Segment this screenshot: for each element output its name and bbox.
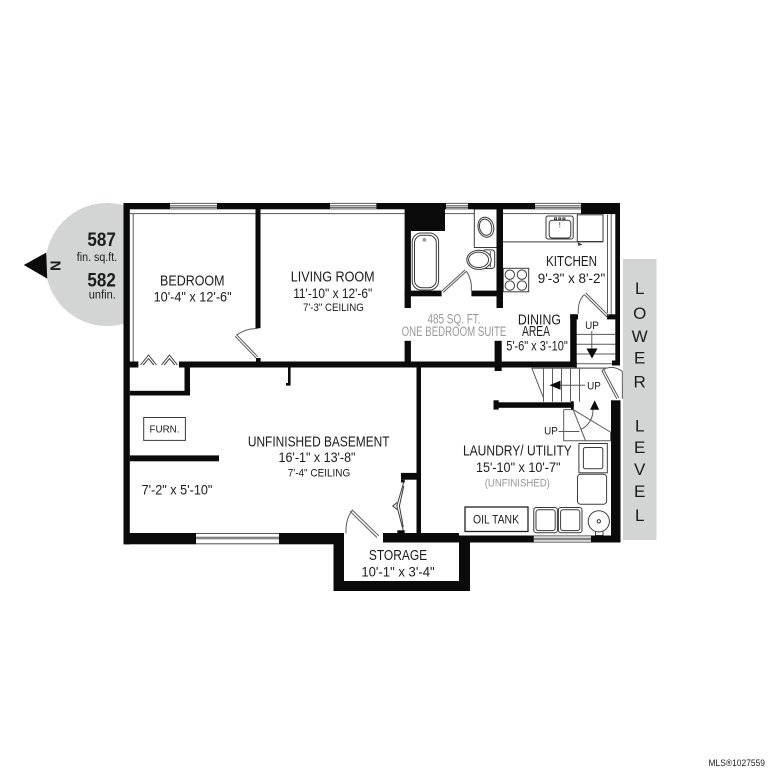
svg-text:KITCHEN: KITCHEN [546,254,597,270]
svg-text:V: V [634,460,646,479]
svg-text:UP: UP [544,426,558,438]
svg-text:UP: UP [587,381,601,393]
svg-text:(UNFINISHED): (UNFINISHED) [485,477,550,489]
svg-text:UNFINISHED BASEMENT: UNFINISHED BASEMENT [248,435,390,451]
svg-text:7'-4" CEILING: 7'-4" CEILING [288,467,351,479]
svg-text:L: L [635,417,644,436]
svg-text:ONE BEDROOM SUITE: ONE BEDROOM SUITE [402,324,507,339]
svg-text:OIL TANK: OIL TANK [473,515,519,527]
svg-text:R: R [634,373,646,392]
svg-text:587: 587 [87,230,115,251]
svg-text:LAUNDRY/ UTILITY: LAUNDRY/ UTILITY [463,444,572,460]
svg-text:L: L [635,279,644,298]
svg-text:7'-2" x 5'-10": 7'-2" x 5'-10" [142,483,213,498]
svg-text:11'-10" x 12'-6": 11'-10" x 12'-6" [293,286,372,301]
svg-text:10'-1" x 3'-4": 10'-1" x 3'-4" [361,565,434,580]
svg-text:O: O [633,304,646,323]
svg-text:9'-3" x 8'-2": 9'-3" x 8'-2" [538,271,606,286]
svg-text:MLS®1027559: MLS®1027559 [709,758,766,768]
svg-text:15'-10" x 10'-7": 15'-10" x 10'-7" [476,460,561,475]
svg-text:16'-1" x 13'-8": 16'-1" x 13'-8" [279,450,356,465]
svg-text:E: E [634,438,645,457]
svg-text:unfin.: unfin. [89,290,116,302]
svg-text:N: N [48,261,64,271]
svg-text:UP: UP [585,320,599,332]
svg-text:LIVING ROOM: LIVING ROOM [291,270,375,286]
svg-text:10'-4" x 12'-6": 10'-4" x 12'-6" [154,290,232,305]
svg-text:L: L [635,506,644,525]
svg-text:STORAGE: STORAGE [369,548,427,564]
svg-text:fin. sq.ft.: fin. sq.ft. [77,252,117,264]
svg-text:7'-3" CEILING: 7'-3" CEILING [303,302,364,314]
svg-text:5'-6" x 3'-10": 5'-6" x 3'-10" [506,339,568,354]
svg-text:FURN.: FURN. [150,424,180,436]
svg-text:BEDROOM: BEDROOM [160,273,225,289]
svg-text:W: W [632,327,648,346]
svg-text:E: E [634,349,645,368]
svg-text:582: 582 [87,271,115,292]
svg-text:E: E [634,482,645,501]
